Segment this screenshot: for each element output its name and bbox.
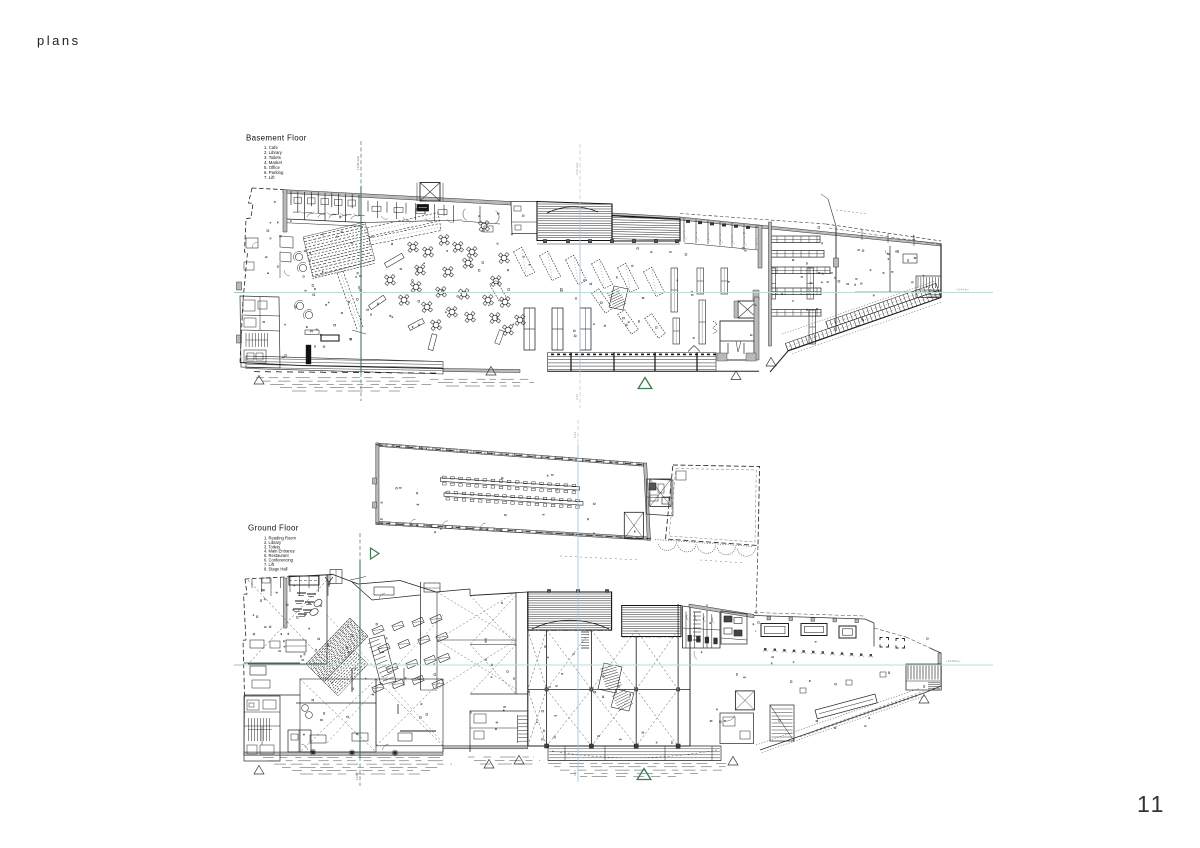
svg-text:+18.88 lev: +18.88 lev xyxy=(946,659,961,663)
svg-text:9.44: 9.44 xyxy=(573,432,577,438)
svg-text:+9.44 lev: +9.44 lev xyxy=(956,288,969,292)
svg-text:8. Stage Hall: 8. Stage Hall xyxy=(264,566,288,571)
svg-text:7. Lift: 7. Lift xyxy=(264,175,275,180)
svg-text:9.44: 9.44 xyxy=(575,394,579,400)
svg-text:k: k xyxy=(755,629,757,633)
svg-text:9.44: 9.44 xyxy=(573,770,577,776)
svg-text:Basement Floor: Basement Floor xyxy=(246,134,307,143)
svg-text:9.44 axis: 9.44 axis xyxy=(575,162,579,175)
svg-text:.: . xyxy=(234,287,235,291)
svg-text:14.80 axis: 14.80 axis xyxy=(356,155,360,170)
svg-text:Ground Floor: Ground Floor xyxy=(248,524,299,533)
svg-text:14.80: 14.80 xyxy=(355,772,359,780)
